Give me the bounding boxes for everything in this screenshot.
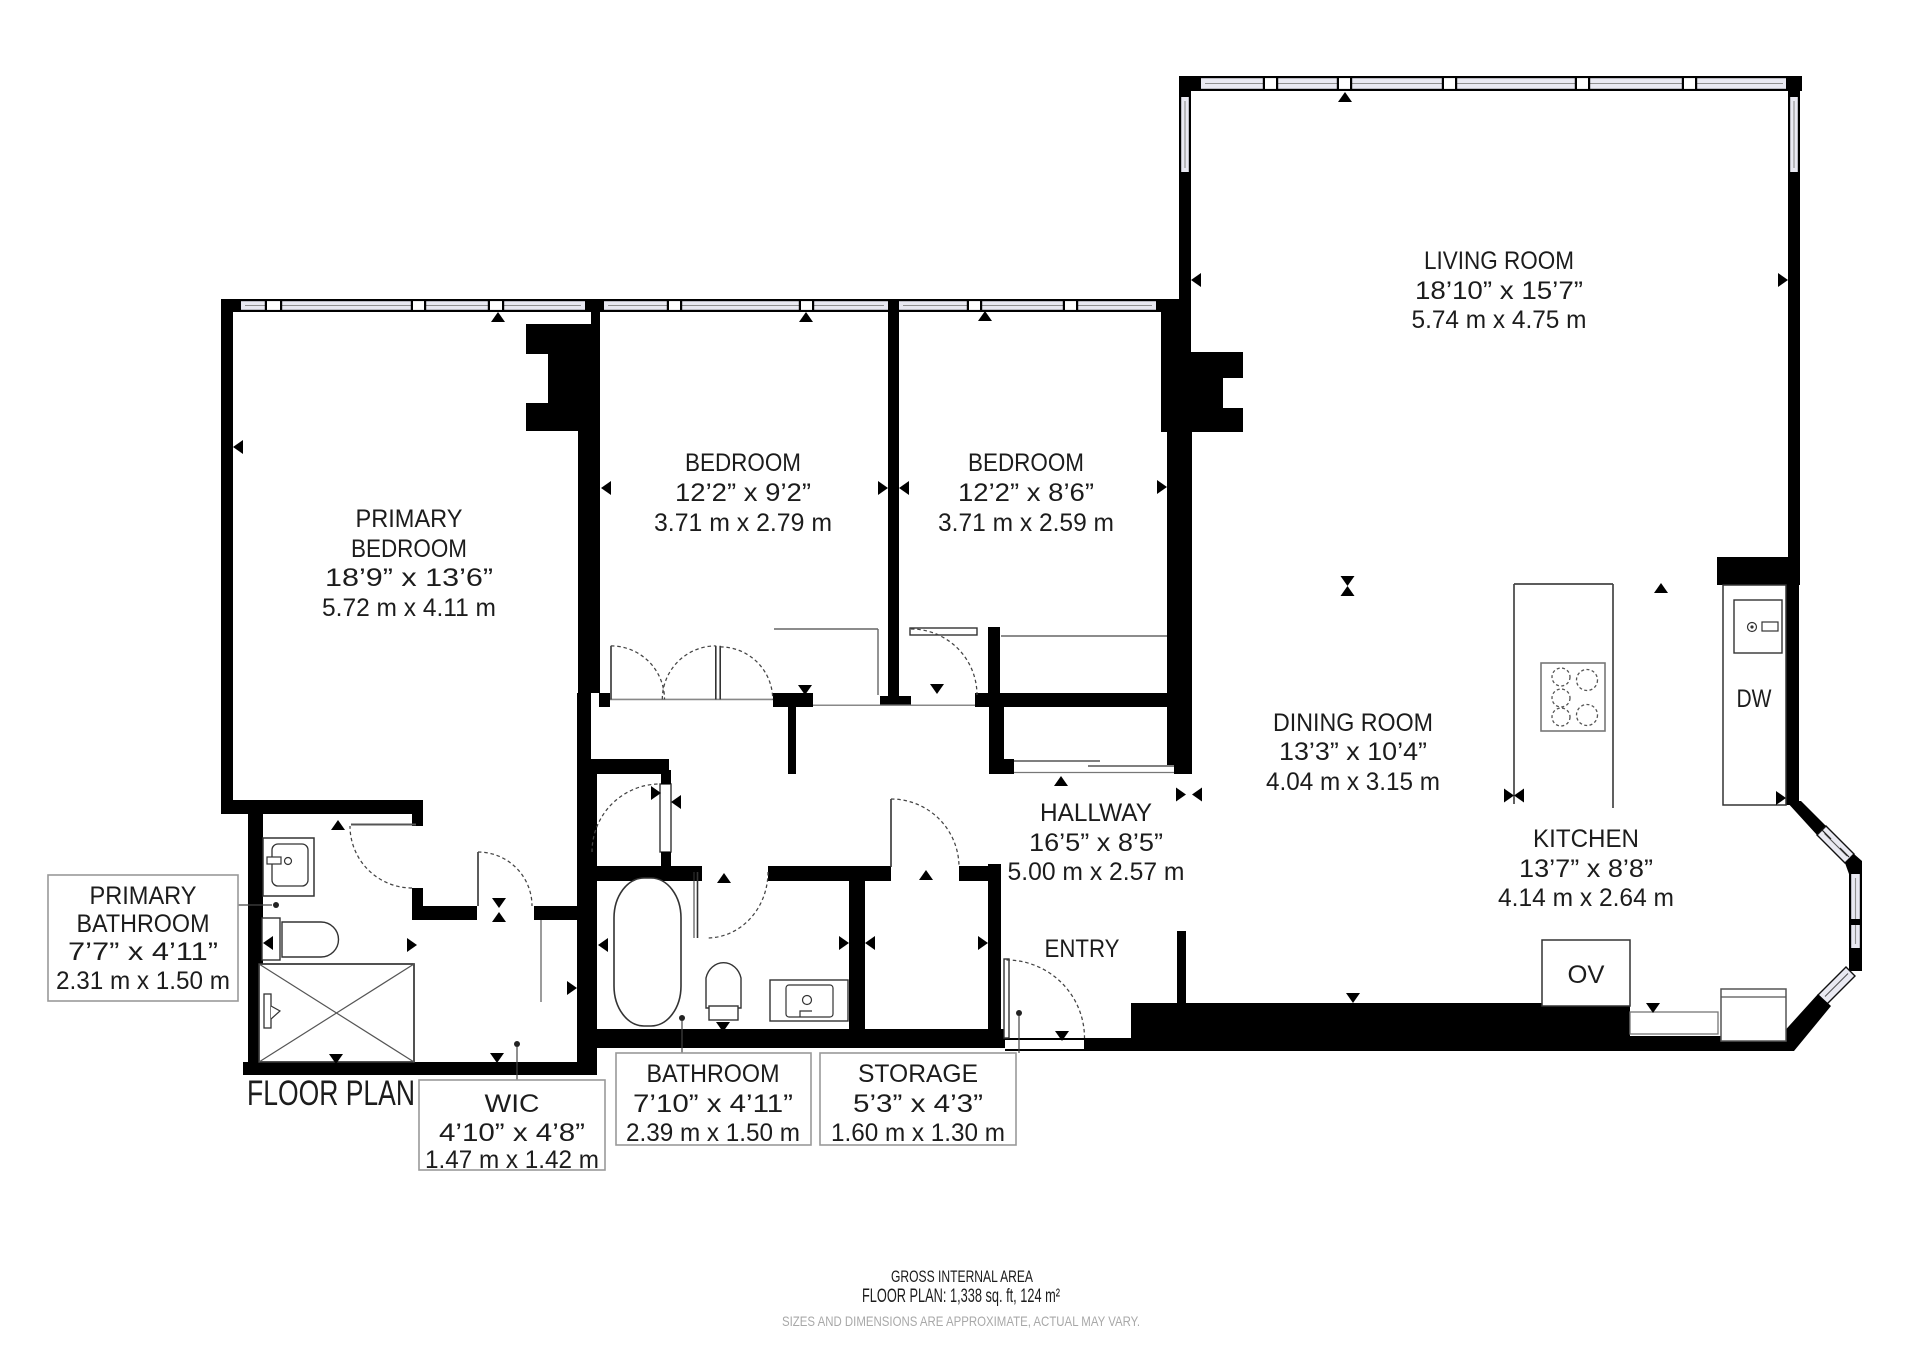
svg-text:GROSS INTERNAL AREA: GROSS INTERNAL AREA bbox=[891, 1267, 1033, 1286]
svg-text:WIC: WIC bbox=[485, 1090, 540, 1118]
svg-text:PRIMARY: PRIMARY bbox=[90, 882, 197, 910]
svg-text:1.47 m x 1.42 m: 1.47 m x 1.42 m bbox=[425, 1146, 599, 1174]
svg-text:12’2” x 9’2”: 12’2” x 9’2” bbox=[675, 479, 811, 507]
svg-text:HALLWAY: HALLWAY bbox=[1040, 799, 1152, 827]
svg-text:16’5” x 8’5”: 16’5” x 8’5” bbox=[1029, 829, 1163, 857]
svg-text:7’7” x 4’11”: 7’7” x 4’11” bbox=[68, 938, 218, 966]
svg-text:7’10” x 4’11”: 7’10” x 4’11” bbox=[633, 1090, 793, 1118]
svg-text:4.04 m x 3.15 m: 4.04 m x 3.15 m bbox=[1266, 768, 1440, 796]
svg-text:18’9” x 13’6”: 18’9” x 13’6” bbox=[325, 564, 493, 592]
svg-text:12’2” x 8’6”: 12’2” x 8’6” bbox=[958, 479, 1094, 507]
svg-text:FLOOR PLAN: 1,338 sq. ft, 124: FLOOR PLAN: 1,338 sq. ft, 124 m² bbox=[862, 1286, 1060, 1307]
svg-text:5.00 m x 2.57 m: 5.00 m x 2.57 m bbox=[1008, 858, 1185, 886]
svg-text:13’7” x 8’8”: 13’7” x 8’8” bbox=[1519, 855, 1653, 883]
svg-text:BATHROOM: BATHROOM bbox=[77, 910, 210, 938]
svg-text:DW: DW bbox=[1737, 685, 1772, 713]
svg-text:BATHROOM: BATHROOM bbox=[647, 1060, 780, 1088]
svg-text:4.14 m x 2.64 m: 4.14 m x 2.64 m bbox=[1498, 884, 1674, 912]
svg-text:LIVING ROOM: LIVING ROOM bbox=[1424, 247, 1574, 275]
svg-text:OV: OV bbox=[1568, 961, 1605, 989]
svg-text:BEDROOM: BEDROOM bbox=[685, 449, 801, 477]
svg-text:BEDROOM: BEDROOM bbox=[968, 449, 1084, 477]
svg-text:5.72 m x 4.11 m: 5.72 m x 4.11 m bbox=[322, 594, 496, 622]
svg-text:13’3” x 10’4”: 13’3” x 10’4” bbox=[1279, 738, 1427, 766]
svg-text:18’10” x 15’7”: 18’10” x 15’7” bbox=[1415, 277, 1583, 305]
svg-text:3.71 m x 2.79 m: 3.71 m x 2.79 m bbox=[654, 509, 832, 537]
svg-text:KITCHEN: KITCHEN bbox=[1533, 825, 1639, 853]
svg-text:DINING ROOM: DINING ROOM bbox=[1273, 709, 1433, 737]
svg-text:SIZES AND DIMENSIONS ARE APPRO: SIZES AND DIMENSIONS ARE APPROXIMATE, AC… bbox=[782, 1313, 1140, 1329]
svg-text:3.71 m x 2.59 m: 3.71 m x 2.59 m bbox=[938, 509, 1114, 537]
svg-text:STORAGE: STORAGE bbox=[858, 1060, 978, 1088]
svg-text:BEDROOM: BEDROOM bbox=[351, 535, 467, 563]
svg-text:4’10” x 4’8”: 4’10” x 4’8” bbox=[439, 1119, 585, 1147]
svg-text:FLOOR PLAN: FLOOR PLAN bbox=[247, 1074, 415, 1113]
svg-text:ENTRY: ENTRY bbox=[1045, 935, 1120, 963]
svg-text:2.39 m x 1.50 m: 2.39 m x 1.50 m bbox=[626, 1119, 800, 1147]
svg-text:PRIMARY: PRIMARY bbox=[356, 505, 463, 533]
svg-text:1.60 m x 1.30 m: 1.60 m x 1.30 m bbox=[831, 1119, 1005, 1147]
svg-text:5.74 m x 4.75 m: 5.74 m x 4.75 m bbox=[1412, 306, 1587, 334]
svg-text:2.31 m x 1.50 m: 2.31 m x 1.50 m bbox=[56, 967, 230, 995]
svg-text:5’3” x 4’3”: 5’3” x 4’3” bbox=[853, 1090, 983, 1118]
